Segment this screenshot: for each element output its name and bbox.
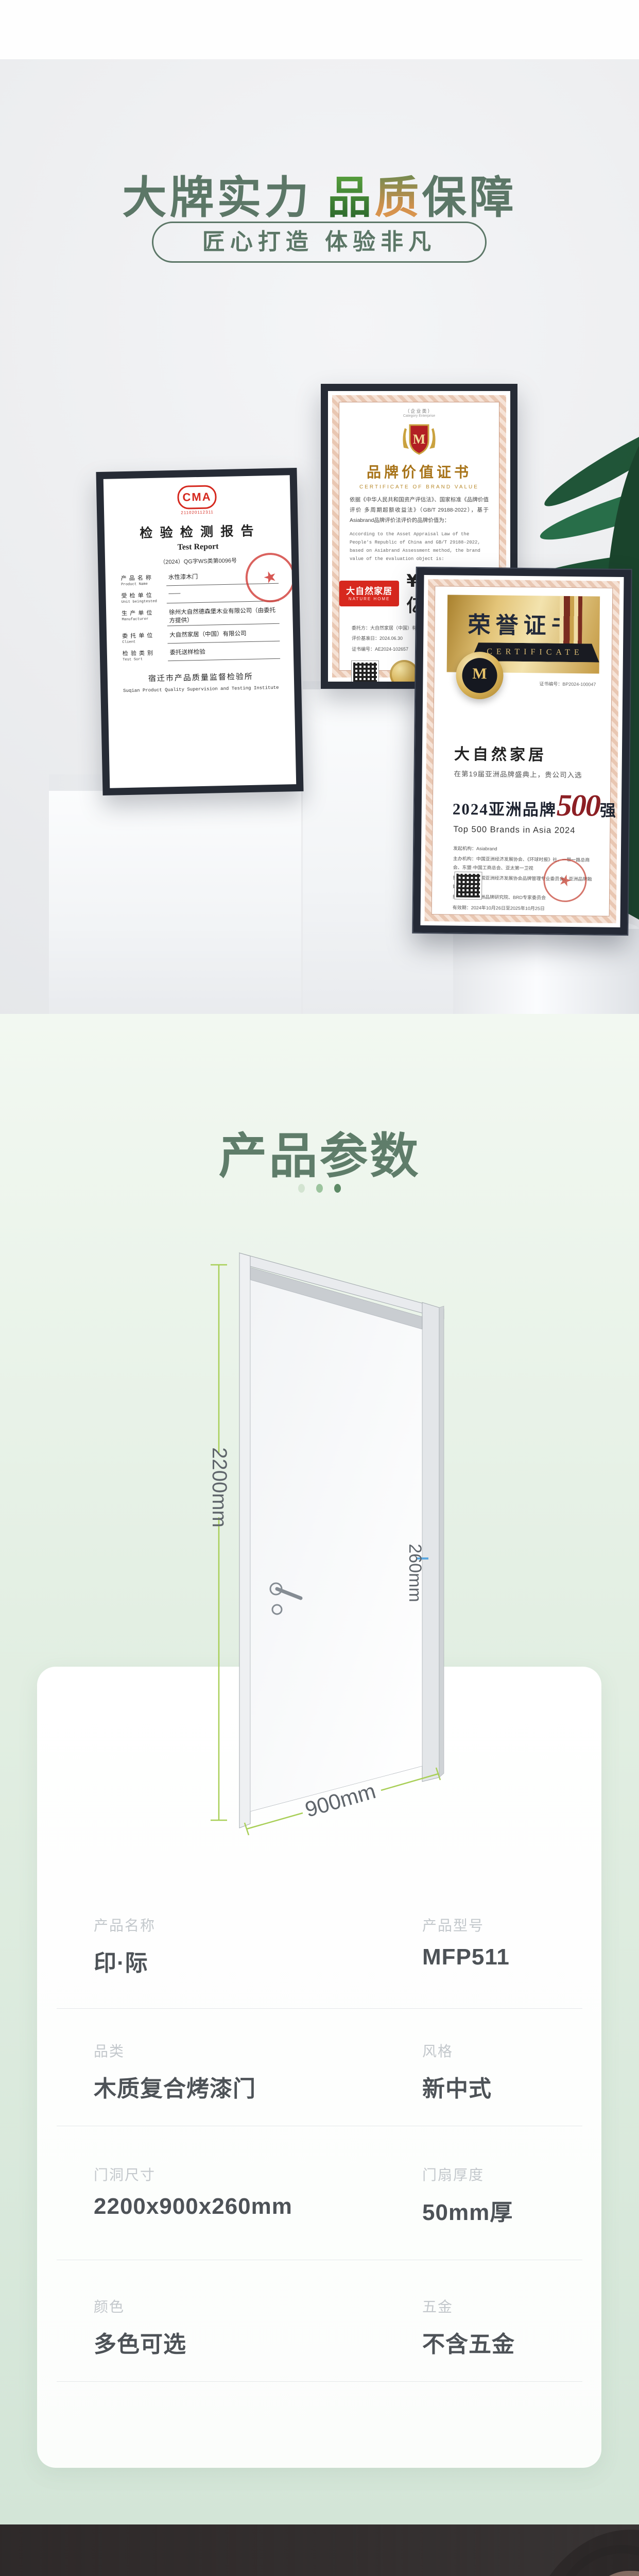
spec-cell: 产品型号MFP511 — [422, 1914, 510, 1970]
service-section: 金保姆服务 全国1000+实体门店支持 咨询下单 › 上门量尺 › — [0, 2524, 639, 2576]
height-dimension-label: 2200mm — [208, 1447, 231, 1528]
honor-cert-number: 证书编号：BP2024-100047 — [539, 680, 596, 687]
honor-medal-icon: M — [456, 652, 504, 700]
test-report-field: 生 产 单 位Manufacturer 徐州大自然德森堡木业有限公司（由委托方提… — [122, 606, 280, 627]
depth-dimension-label: 260mm — [405, 1544, 425, 1602]
test-report-field: 检 验 类 别Test Sort 委托送样检验 — [123, 646, 280, 662]
test-report-title-en: Test Report — [105, 540, 291, 554]
hero-title-tail: 保障 — [422, 173, 516, 223]
brand-value-title: 品牌价值证书 — [339, 461, 499, 482]
brand-value-category: （企业类） — [339, 408, 499, 414]
brand-value-paragraph-en: According to the Asset Appraisal Law of … — [350, 530, 489, 564]
top-white-strip — [0, 0, 639, 59]
dark-overlay — [0, 2524, 639, 2576]
honor-award-line: 2024亚洲品牌500强 — [453, 787, 616, 824]
brand-value-paragraph-cn: 依据《中华人民共和国资产评估法》、国家标准《品牌价值评价 多周期超额收益法》（G… — [350, 495, 489, 526]
hero-title-accent-2: 质 — [374, 173, 422, 223]
hero-certificates-section: 大牌实力 品质保障 匠心打造 体验非凡 （企业类） Category Enter… — [0, 59, 639, 1014]
brand-value-title-en: CERTIFICATE OF BRAND VALUE — [339, 484, 499, 490]
honor-qr-code — [455, 872, 482, 900]
cma-logo: CMA — [177, 485, 217, 510]
hero-title-main: 大牌实力 — [123, 173, 312, 223]
brand-value-shield-icon: M — [403, 422, 436, 458]
row-divider — [57, 2260, 582, 2260]
spec-cell: 颜色多色可选 — [94, 2296, 186, 2359]
honor-award-en: Top 500 Brands in Asia 2024 — [453, 825, 575, 836]
door-diagram: 2200mm 900mm 260mm — [129, 1236, 489, 1880]
nature-home-logo: 大自然家居 NATURE HOME — [339, 581, 399, 606]
spec-cell: 风格新中式 — [422, 2040, 492, 2103]
product-detail-page: 大牌实力 品质保障 匠心打造 体验非凡 （企业类） Category Enter… — [0, 0, 639, 2576]
params-title: 产品参数 — [0, 1117, 639, 1187]
honor-ornate-border: 荣誉证书 CERTIFICATE 证书编号：BP2024-100047 M 大自… — [425, 579, 620, 923]
height-dimension-line — [211, 1265, 227, 1820]
svg-text:M: M — [413, 432, 426, 447]
dot — [334, 1184, 341, 1193]
test-report-issuer: 宿迁市产品质量监督检验所 — [108, 670, 294, 685]
params-title-dots — [0, 1184, 639, 1193]
test-report-field: 委 托 单 位Client 大自然家居（中国）有限公司 — [122, 629, 280, 645]
row-divider — [57, 2126, 582, 2126]
brand-value-gold-seal — [390, 660, 419, 682]
hero-subtitle-pill: 匠心打造 体验非凡 — [152, 222, 487, 263]
product-params-section: 产品参数 — [0, 1014, 639, 2524]
honor-intro: 在第19届亚洲品牌盛典上，贵公司入选 — [454, 768, 582, 780]
cma-code: 211020112311 — [104, 508, 290, 517]
brand-value-qr-code — [352, 661, 378, 682]
spec-cell: 品类木质复合烤漆门 — [94, 2040, 256, 2103]
pedestal-left-front — [49, 791, 301, 1014]
hero-title-accent-1: 品 — [327, 173, 374, 223]
honor-brand: 大自然家居 — [454, 741, 547, 765]
row-divider — [57, 2381, 582, 2382]
spec-cell: 产品名称印·际 — [94, 1914, 156, 1977]
dot — [316, 1184, 323, 1193]
pedestal-cylinder-body — [453, 929, 639, 1014]
certificate-test-report: CMA 211020112311 ★ 检 验 检 测 报 告 Test Repo… — [96, 468, 303, 795]
hero-title: 大牌实力 品质保障 — [0, 161, 639, 226]
dot — [298, 1184, 305, 1193]
spec-cell: 五金不含五金 — [422, 2296, 515, 2359]
spec-cell: 门洞尺寸2200x900x260mm — [94, 2164, 292, 2219]
test-report-issuer-en: Suqian Product Quality Supervision and T… — [108, 685, 294, 694]
spec-cell: 门扇厚度50mm厚 — [422, 2164, 513, 2227]
certificate-honor: 荣誉证书 CERTIFICATE 证书编号：BP2024-100047 M 大自… — [413, 568, 631, 935]
test-report-title: 检 验 检 测 报 告 — [105, 520, 291, 543]
row-divider — [57, 2008, 582, 2009]
